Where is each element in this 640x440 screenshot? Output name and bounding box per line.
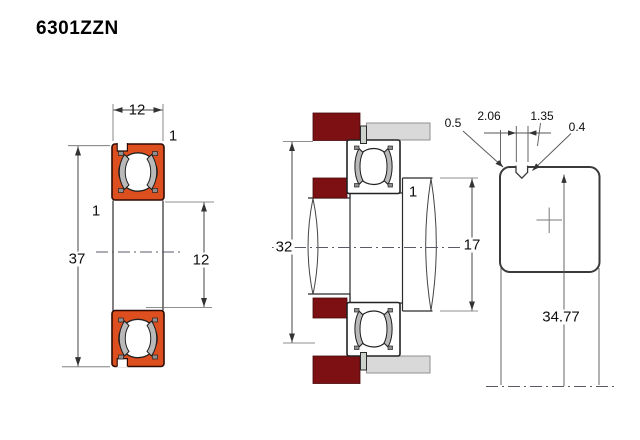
dim-groove-offset: 2.06 — [477, 110, 500, 122]
label-shoulder-fillet: 1 — [409, 185, 417, 200]
housing-shoulder — [313, 178, 347, 198]
shield-tab — [153, 318, 158, 322]
dim-shaft-shoulder: 17 — [462, 238, 483, 253]
snap-groove-notch — [117, 358, 128, 367]
dim-front-bore: 12 — [191, 253, 212, 268]
shield-tab — [355, 309, 360, 313]
shield-tab — [388, 184, 393, 188]
shield-tab — [388, 146, 393, 150]
shield-tab — [119, 152, 124, 156]
snap-ring — [361, 126, 367, 144]
shield-tab — [388, 309, 393, 313]
label-front-inner-chamfer: 1 — [92, 204, 100, 219]
snap-groove-notch — [117, 143, 128, 152]
shield-tab — [355, 184, 360, 188]
shield-tab — [153, 355, 158, 359]
groove-detail-view — [463, 123, 616, 387]
bearing-drawing-page: 6301ZZN — [0, 0, 640, 440]
snap-ring — [361, 353, 367, 371]
dim-front-od: 37 — [67, 252, 88, 267]
dim-groove-width: 1.35 — [530, 110, 553, 122]
housing-block — [313, 113, 360, 141]
shield-tab — [119, 318, 124, 322]
spacer-block — [367, 356, 431, 373]
dim-groove-diameter: 34.77 — [540, 310, 582, 325]
dim-front-width: 12 — [129, 103, 146, 118]
housing-shoulder — [313, 298, 347, 318]
shield-tab — [153, 152, 158, 156]
shield-tab — [153, 189, 158, 193]
shield-tab — [355, 146, 360, 150]
dim-groove-edge: 0.4 — [569, 121, 586, 133]
shield-tab — [119, 189, 124, 193]
dim-housing-shoulder: 32 — [274, 240, 295, 255]
part-number-title: 6301ZZN — [36, 18, 119, 40]
shield-tab — [119, 355, 124, 359]
shaft-break — [308, 199, 318, 295]
spacer-block — [367, 123, 431, 140]
shaft-break — [426, 179, 437, 311]
front-view — [62, 104, 214, 367]
technical-drawing — [0, 0, 640, 440]
label-front-outer-chamfer: 1 — [169, 129, 177, 144]
mounted-view — [272, 113, 478, 384]
shield-tab — [388, 346, 393, 350]
housing-block — [313, 356, 360, 384]
shield-tab — [355, 346, 360, 350]
dim-corner-radius: 0.5 — [445, 117, 462, 129]
